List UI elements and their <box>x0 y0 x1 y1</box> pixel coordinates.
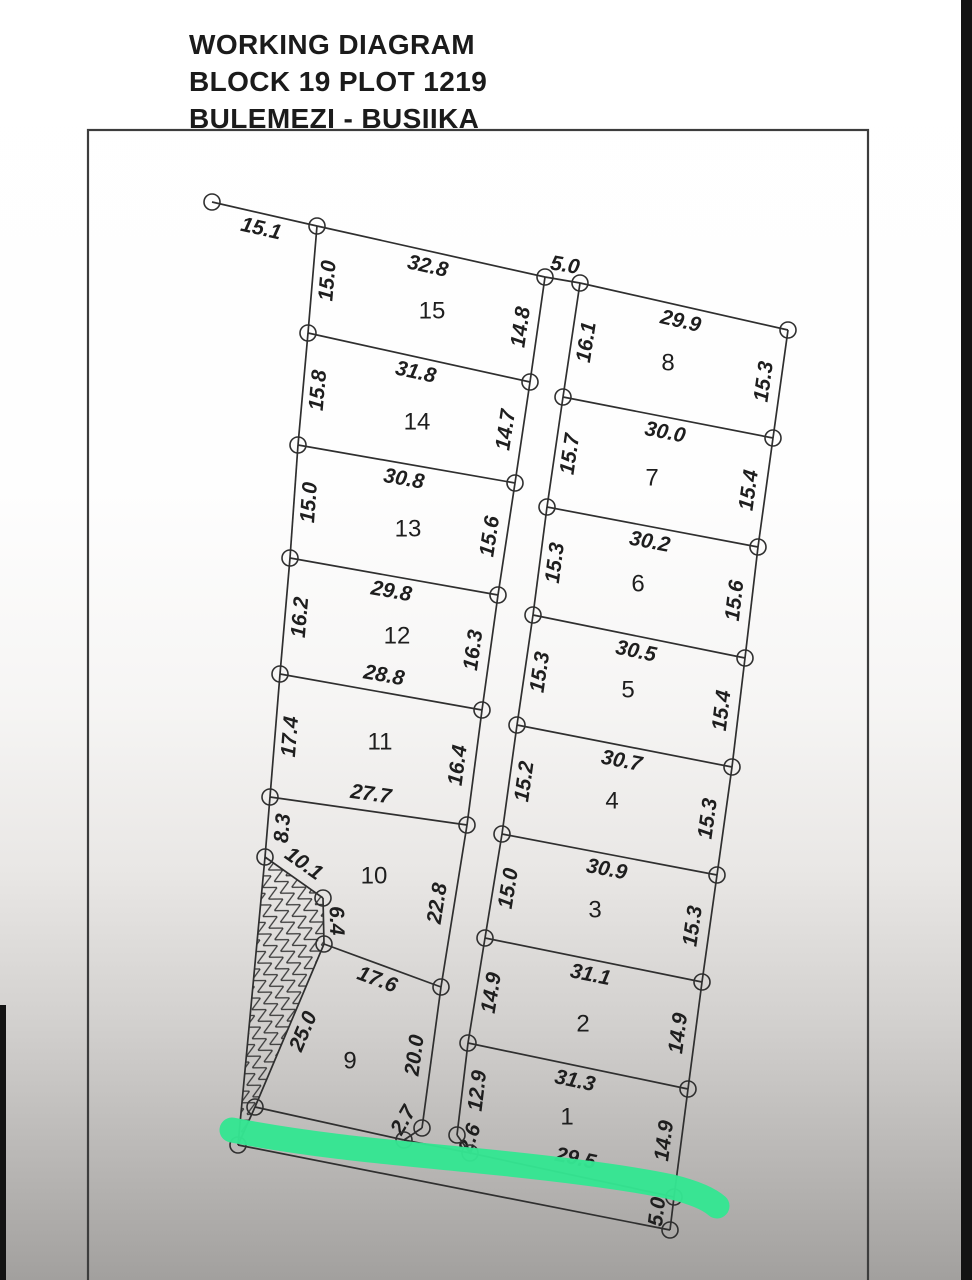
boundary-line <box>758 438 773 547</box>
plot-number: 13 <box>395 515 422 542</box>
plot-number: 4 <box>605 787 618 814</box>
plot-number: 1 <box>560 1103 573 1130</box>
boundary-line <box>515 382 530 483</box>
dimension-label: 14.9 <box>650 1119 678 1163</box>
dimension-label: 28.8 <box>361 660 407 690</box>
dimension-label: 15.3 <box>541 541 569 585</box>
dimension-label: 15.7 <box>556 431 585 476</box>
dimension-label: 15.3 <box>694 797 722 841</box>
dimension-label: 31.1 <box>568 959 613 990</box>
plot-number: 6 <box>631 570 644 597</box>
photo-edge-strip-right <box>961 0 972 1280</box>
photo-edge-strip-left <box>0 1005 6 1280</box>
dimension-label: 22.8 <box>423 881 452 926</box>
dimension-label: 8.3 <box>270 812 295 843</box>
dimension-label: 15.8 <box>305 369 332 412</box>
dimension-label: 14.8 <box>506 305 535 349</box>
dimension-label: 15.0 <box>296 481 322 524</box>
dimension-label: 20.0 <box>400 1033 428 1078</box>
plot-number: 7 <box>645 464 658 491</box>
dimension-label: 15.0 <box>314 259 340 302</box>
dimension-label: 16.4 <box>444 743 472 787</box>
boundary-line <box>265 797 270 857</box>
dimension-label: 6.4 <box>325 906 349 936</box>
boundary-line <box>467 710 482 825</box>
plot-number: 10 <box>361 862 388 889</box>
dimension-label: 15.4 <box>708 689 736 733</box>
dimension-label: 15.2 <box>510 759 538 803</box>
boundary-line <box>530 277 545 382</box>
boundary-line <box>323 898 324 944</box>
dimension-label: 14.9 <box>664 1011 692 1055</box>
dimension-label: 31.8 <box>393 357 438 388</box>
dimension-label: 15.3 <box>526 650 555 694</box>
scanned-survey-page: WORKING DIAGRAM BLOCK 19 PLOT 1219 BULEM… <box>0 0 972 1280</box>
boundary-line <box>717 767 732 875</box>
dimension-label: 16.1 <box>572 320 601 364</box>
dimension-label: 17.6 <box>354 962 401 998</box>
boundary-line <box>773 330 788 438</box>
dimension-label: 17.4 <box>277 715 303 758</box>
plot-number: 12 <box>384 622 411 649</box>
dimension-label: 15.3 <box>750 360 778 404</box>
dimension-label: 15.3 <box>678 904 706 948</box>
plot-number: 2 <box>576 1010 589 1037</box>
dimension-label: 15.4 <box>735 468 763 512</box>
dimension-label: 29.8 <box>368 576 414 606</box>
boundary-line <box>670 1197 674 1230</box>
boundary-line <box>745 547 758 658</box>
plot-number: 9 <box>343 1047 356 1074</box>
dimension-label: 30.5 <box>614 636 659 667</box>
dimension-label: 12.9 <box>464 1069 492 1113</box>
dimension-label: 30.0 <box>643 417 688 447</box>
dimension-label: 31.3 <box>553 1065 598 1096</box>
diagram-svg: 15.115.015.815.016.217.48.310.16.425.029… <box>0 0 972 1280</box>
plot-number: 3 <box>588 896 601 923</box>
dimension-label: 16.3 <box>459 628 487 672</box>
dimension-label: 32.8 <box>405 251 450 282</box>
dimension-label: 15.6 <box>475 514 504 558</box>
dimension-label: 30.7 <box>599 746 645 777</box>
dimension-label: 30.8 <box>382 464 427 494</box>
plot-number: 14 <box>404 408 431 435</box>
plot-number: 11 <box>368 728 393 755</box>
plot-number: 5 <box>621 676 634 703</box>
dimension-label: 15.6 <box>721 579 749 623</box>
dimension-label: 15.0 <box>494 866 523 910</box>
dimension-label: 27.7 <box>348 780 394 809</box>
plot-number: 15 <box>419 297 446 324</box>
boundary-line <box>688 982 702 1089</box>
dimension-label: 30.9 <box>584 854 629 884</box>
boundary-line <box>732 658 745 767</box>
dimension-label: 30.2 <box>627 527 672 557</box>
dimension-label: 16.2 <box>287 596 313 639</box>
dimension-label: 14.9 <box>477 971 506 1015</box>
dimension-label: 14.7 <box>491 407 520 452</box>
boundary-line <box>702 875 717 982</box>
plot-number: 8 <box>661 349 674 376</box>
